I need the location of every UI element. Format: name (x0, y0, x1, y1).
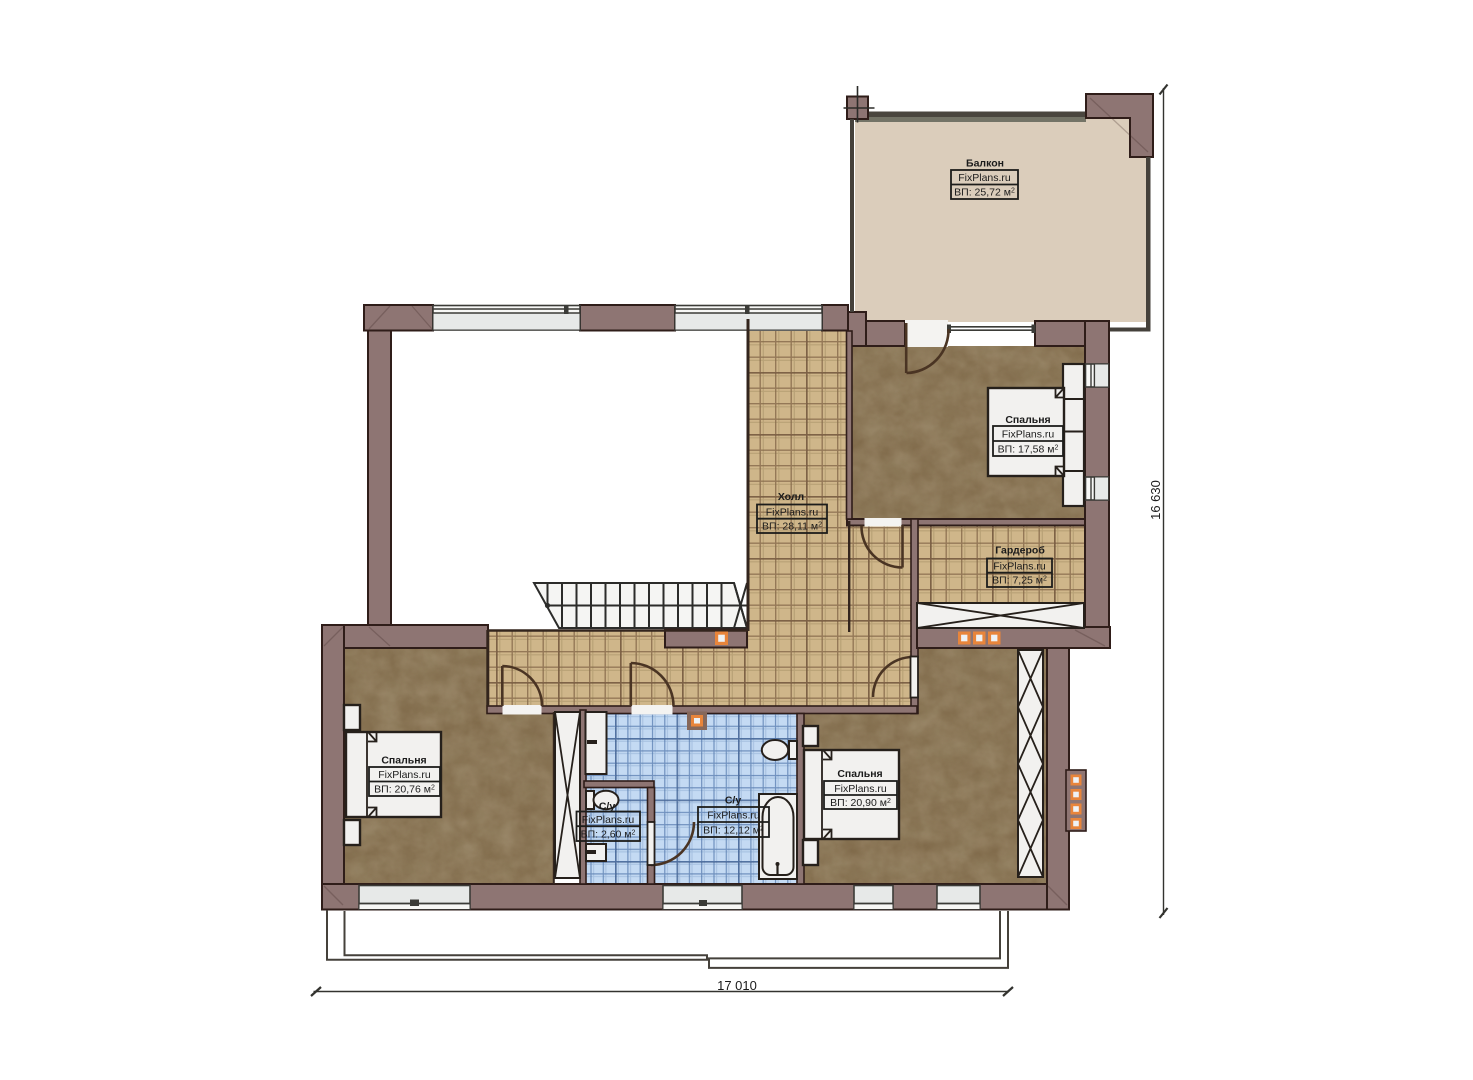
svg-text:С/у: С/у (725, 795, 742, 807)
svg-text:Гардероб: Гардероб (995, 545, 1045, 557)
svg-text:17 010: 17 010 (717, 978, 757, 993)
svg-text:FixPlans.ru: FixPlans.ru (993, 560, 1046, 572)
svg-text:Спальня: Спальня (381, 755, 426, 767)
svg-text:FixPlans.ru: FixPlans.ru (766, 506, 819, 518)
svg-text:ВП: 25,72 м2: ВП: 25,72 м2 (954, 187, 1015, 199)
svg-text:ВП: 17,58 м2: ВП: 17,58 м2 (998, 443, 1059, 455)
svg-text:16 630: 16 630 (1148, 480, 1163, 520)
svg-text:ВП: 2,60 м2: ВП: 2,60 м2 (581, 828, 636, 840)
svg-text:ВП: 12,12 м2: ВП: 12,12 м2 (703, 824, 764, 836)
svg-text:ВП: 20,76 м2: ВП: 20,76 м2 (374, 784, 435, 796)
svg-text:Спальня: Спальня (1005, 414, 1050, 426)
svg-text:FixPlans.ru: FixPlans.ru (958, 172, 1011, 184)
svg-text:FixPlans.ru: FixPlans.ru (707, 809, 760, 821)
svg-text:ВП: 7,25 м2: ВП: 7,25 м2 (992, 575, 1047, 587)
svg-text:ВП: 28,11 м2: ВП: 28,11 м2 (762, 521, 822, 533)
svg-text:Холл: Холл (778, 491, 804, 503)
svg-text:FixPlans.ru: FixPlans.ru (378, 769, 431, 781)
svg-text:ВП: 20,90 м2: ВП: 20,90 м2 (830, 797, 891, 809)
svg-text:FixPlans.ru: FixPlans.ru (1002, 429, 1055, 441)
svg-text:FixPlans.ru: FixPlans.ru (834, 783, 887, 795)
svg-text:Балкон: Балкон (966, 158, 1004, 170)
svg-text:FixPlans.ru: FixPlans.ru (582, 814, 635, 826)
svg-text:Спальня: Спальня (837, 768, 882, 780)
